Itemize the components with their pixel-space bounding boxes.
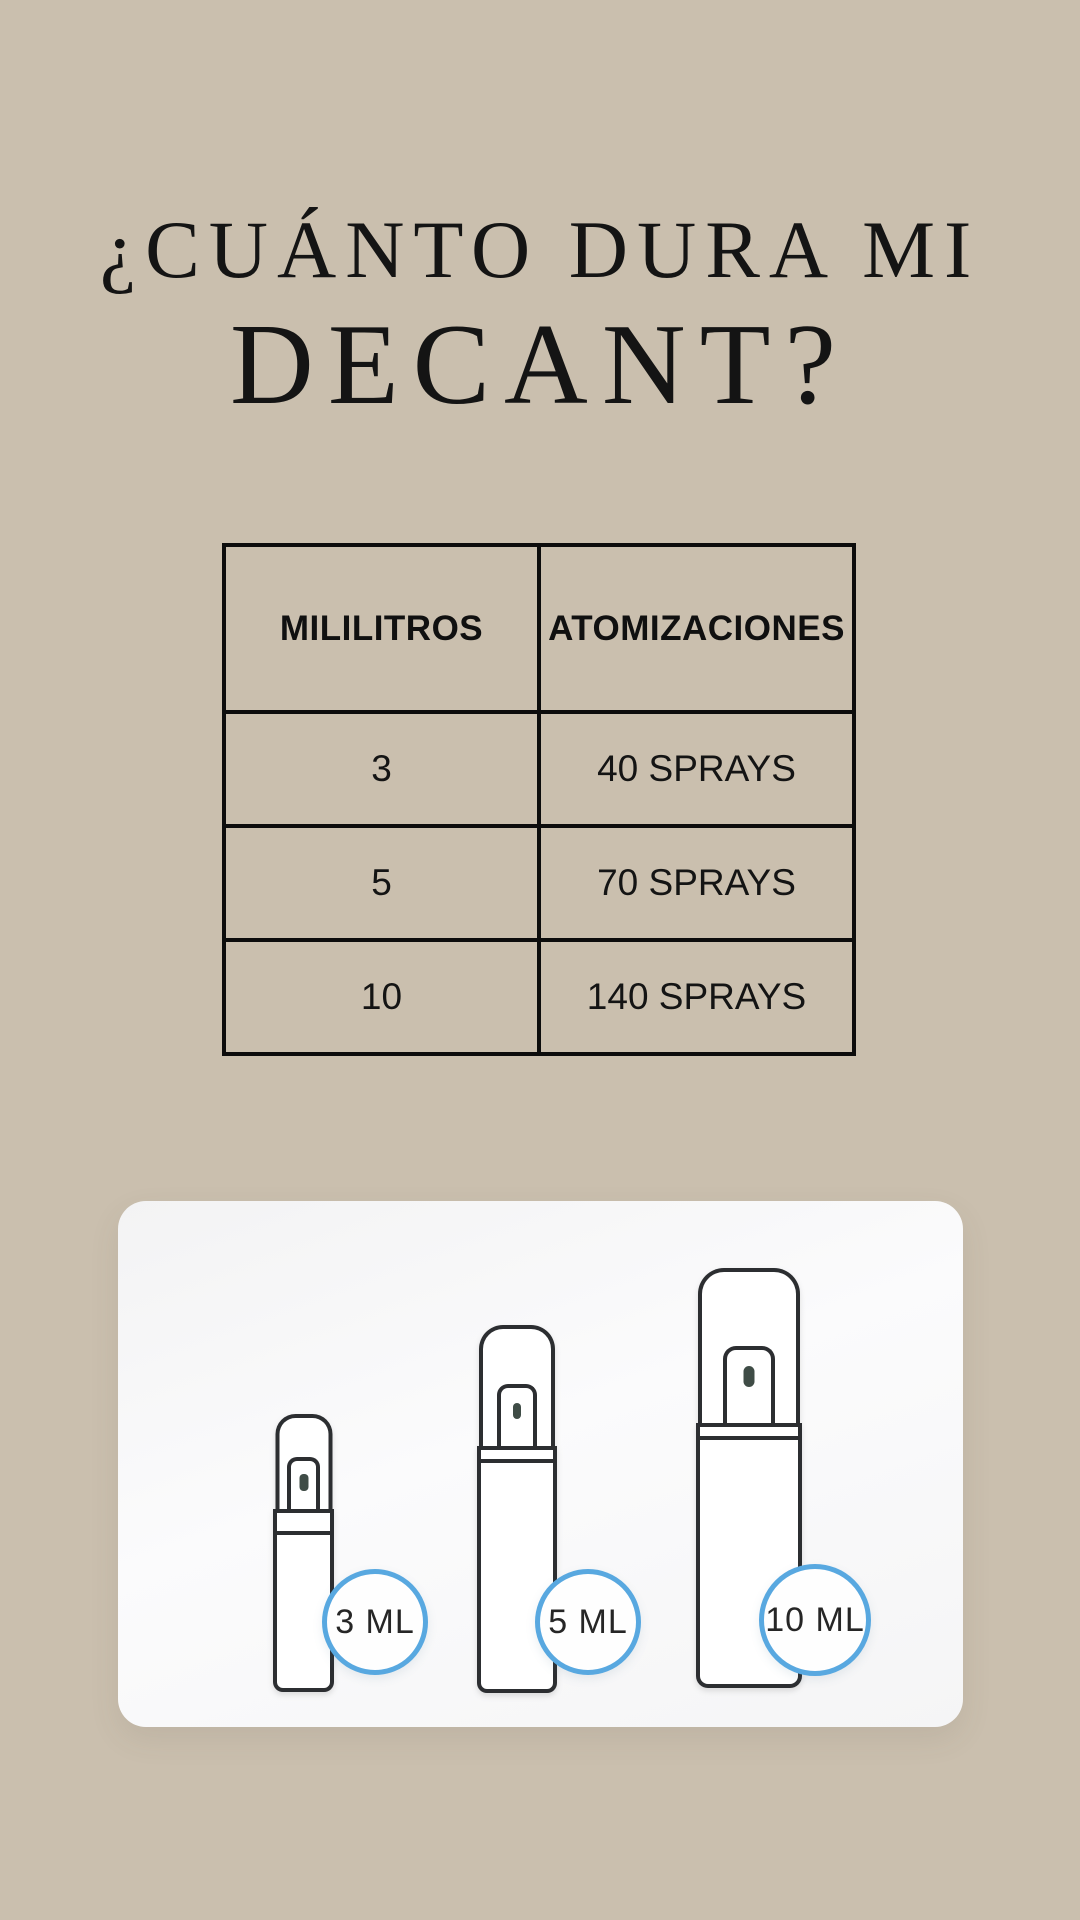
cell-sprays: 40 SPRAYS	[539, 712, 854, 826]
bottle-pump	[723, 1346, 775, 1423]
title-line-1: ¿CUÁNTO DURA MI	[0, 195, 1080, 305]
bottle-cap	[479, 1325, 555, 1446]
volume-badge-5ml: 5 ML	[535, 1569, 641, 1675]
bottle-collar	[696, 1423, 802, 1440]
bottle-collar	[477, 1446, 557, 1463]
bottle-pump	[287, 1457, 320, 1509]
bottles-card: 3 ML 5 ML 10 ML	[118, 1201, 963, 1727]
bottle-nozzle	[744, 1366, 755, 1387]
table-header-row: MILILITROS ATOMIZACIONES	[224, 545, 854, 712]
col-header-atomizaciones: ATOMIZACIONES	[539, 545, 854, 712]
col-header-mililitros: MILILITROS	[224, 545, 539, 712]
cell-sprays: 70 SPRAYS	[539, 826, 854, 940]
table-row: 3 40 SPRAYS	[224, 712, 854, 826]
bottle-cap	[275, 1414, 332, 1509]
decant-size-table: MILILITROS ATOMIZACIONES 3 40 SPRAYS 5 7…	[222, 543, 856, 1056]
volume-badge-label: 10 ML	[765, 1601, 865, 1640]
cell-ml: 10	[224, 940, 539, 1054]
volume-badge-3ml: 3 ML	[322, 1569, 428, 1675]
volume-badge-label: 5 ML	[548, 1603, 628, 1642]
volume-badge-10ml: 10 ML	[759, 1564, 871, 1676]
title-line-2: DECANT?	[0, 305, 1080, 425]
page-title: ¿CUÁNTO DURA MI DECANT?	[0, 195, 1080, 425]
spray-bottle-3ml	[273, 1414, 334, 1692]
bottle-nozzle	[299, 1474, 308, 1491]
bottle-nozzle	[513, 1403, 521, 1419]
cell-sprays: 140 SPRAYS	[539, 940, 854, 1054]
bottle-body	[477, 1463, 557, 1693]
bottle-collar	[273, 1509, 334, 1535]
volume-badge-label: 3 ML	[335, 1603, 415, 1642]
table-row: 5 70 SPRAYS	[224, 826, 854, 940]
cell-ml: 5	[224, 826, 539, 940]
bottle-pump	[497, 1384, 537, 1446]
story-page: ¿CUÁNTO DURA MI DECANT? MILILITROS ATOMI…	[0, 0, 1080, 1920]
table-row: 10 140 SPRAYS	[224, 940, 854, 1054]
cell-ml: 3	[224, 712, 539, 826]
bottle-cap	[698, 1268, 800, 1423]
